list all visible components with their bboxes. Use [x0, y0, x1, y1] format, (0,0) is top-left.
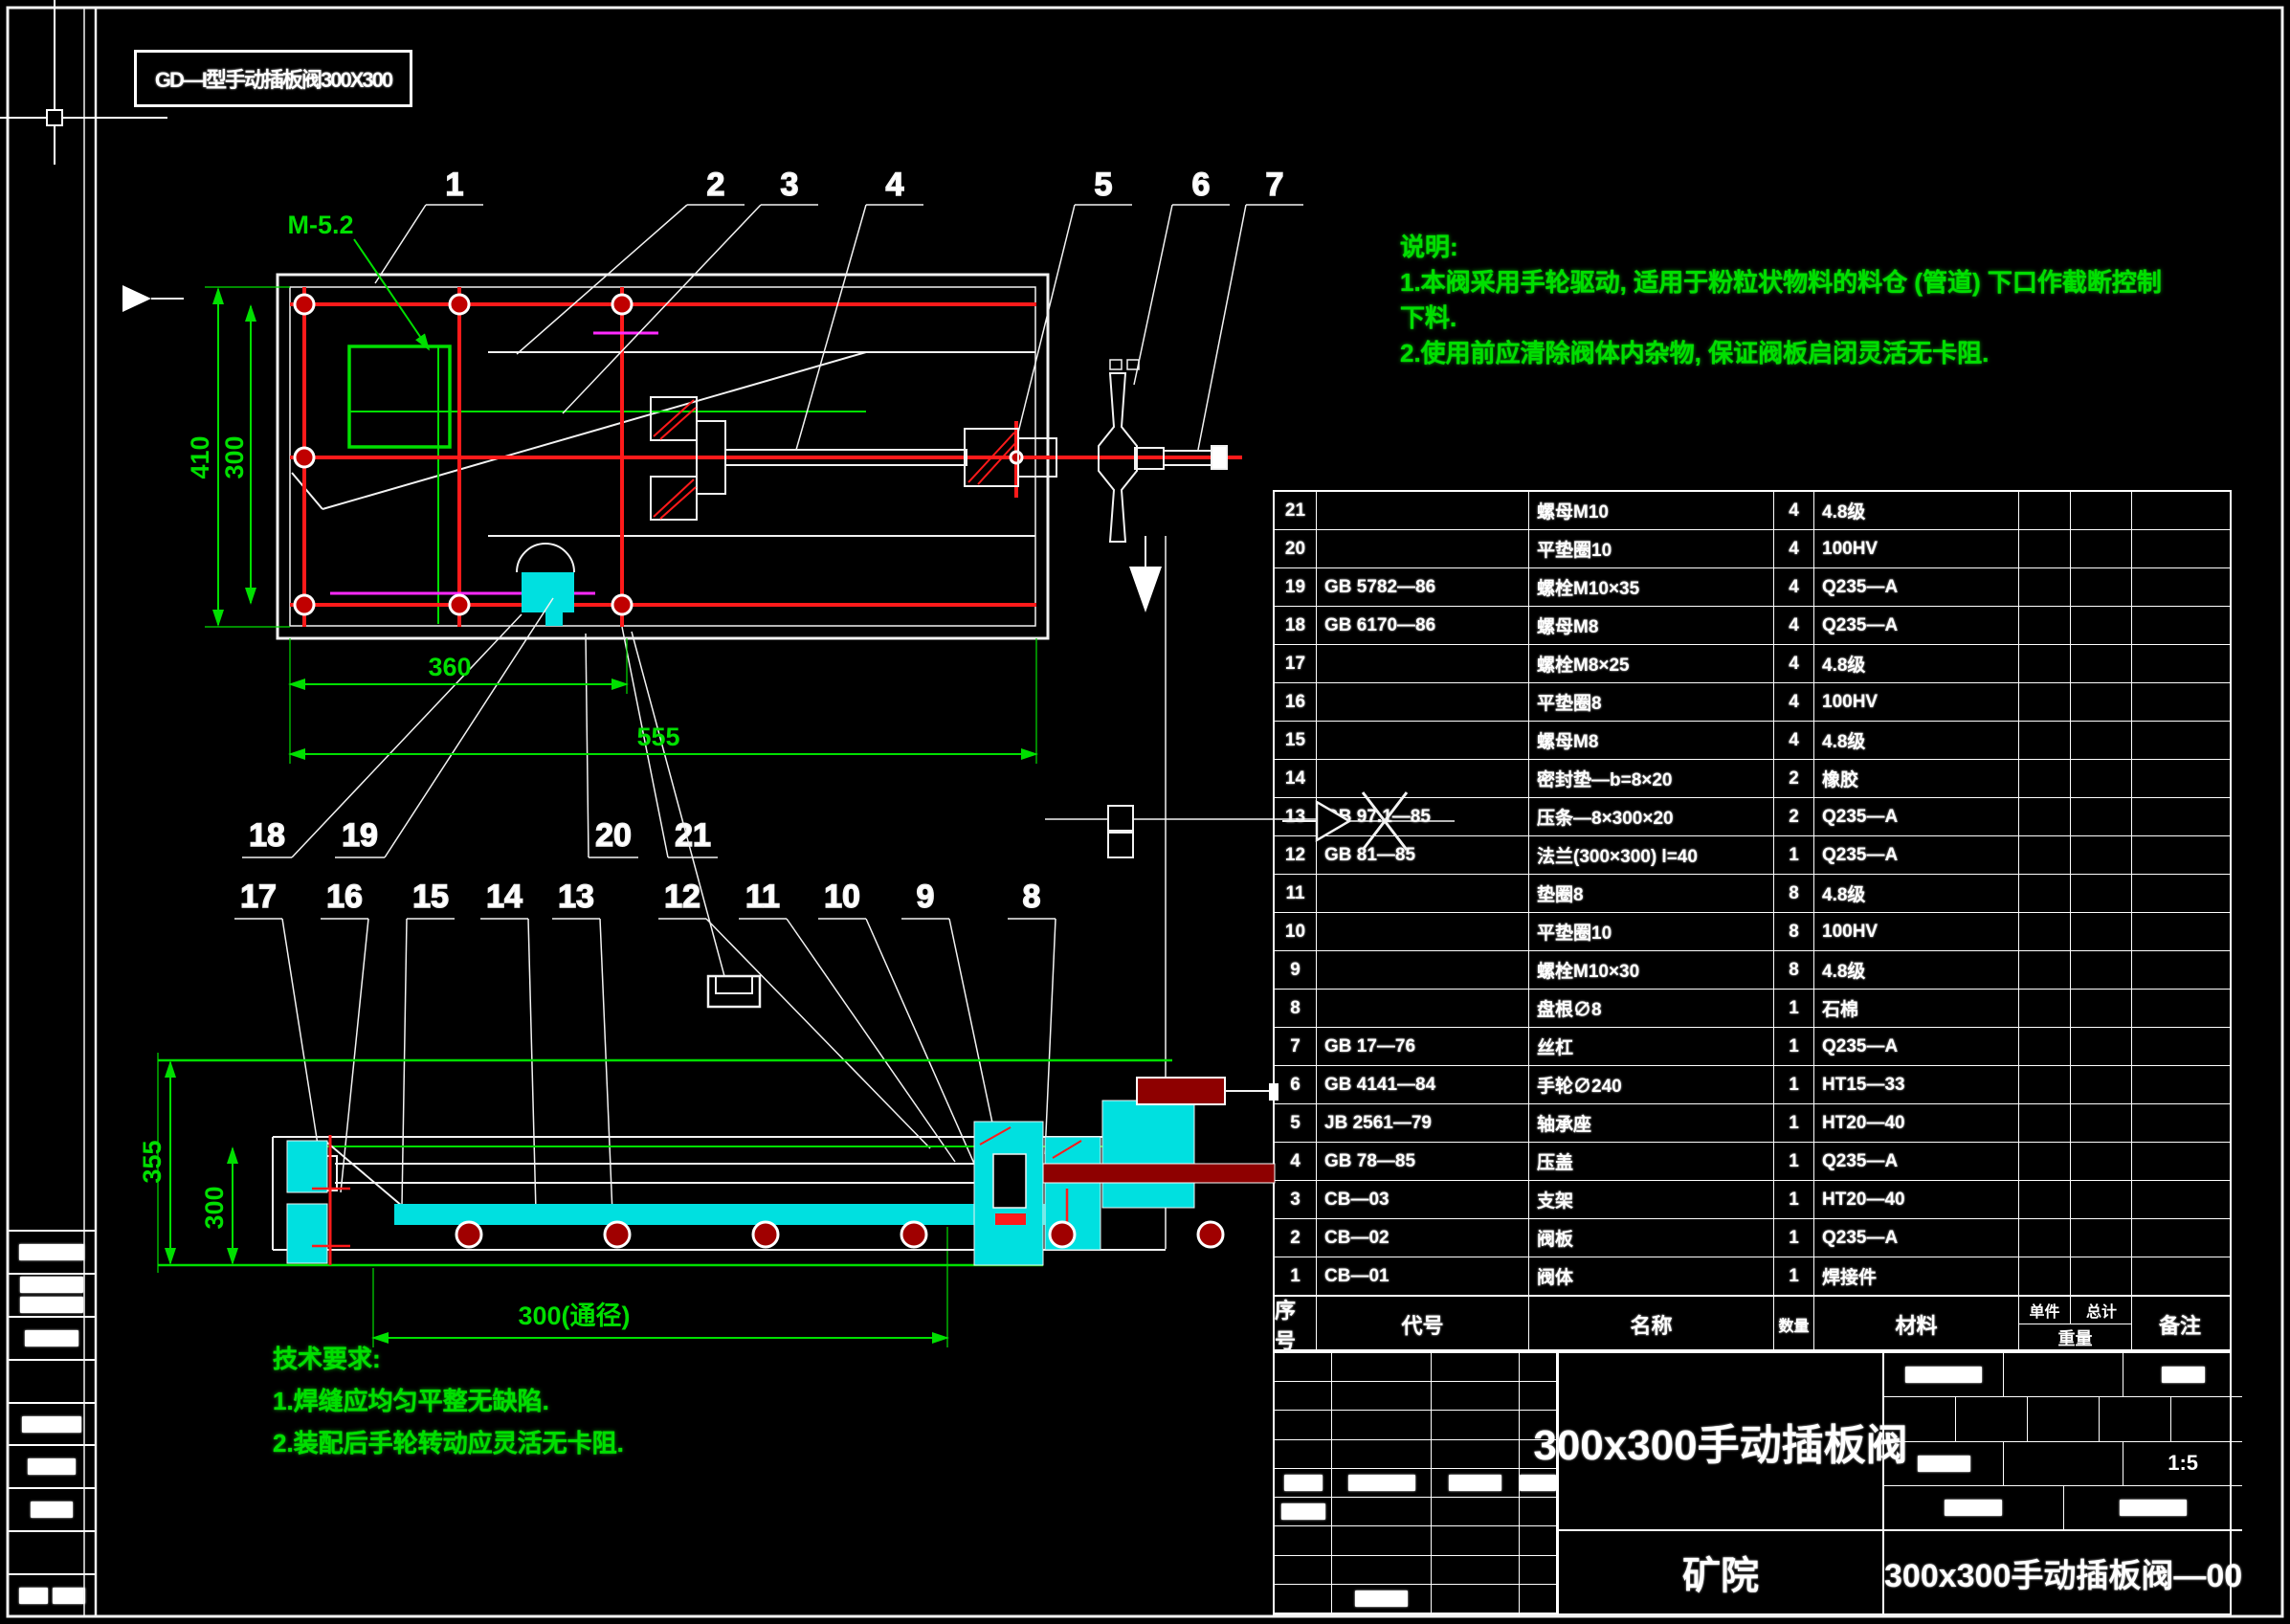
bom-cell-total [2071, 1257, 2132, 1295]
bom-cell-qty: 1 [1774, 1181, 1814, 1218]
balloon-14: 14 [486, 879, 522, 915]
dim-left-outer: 410 [186, 435, 214, 478]
bom-cell-remark [2132, 492, 2228, 529]
bom-header-remark: 备注 [2132, 1297, 2228, 1351]
bom-cell-name: 阀体 [1529, 1257, 1774, 1295]
bom-cell-total [2071, 1181, 2132, 1218]
bom-cell-qty: 1 [1774, 1257, 1814, 1295]
section-dim-left-inner: 300 [200, 1186, 229, 1229]
bom-cell-total [2071, 760, 2132, 797]
bom-cell-qty: 4 [1774, 683, 1814, 721]
bom-cell-mat: HT15—33 [1814, 1066, 2019, 1103]
bom-cell-qty: 4 [1774, 645, 1814, 682]
screw-shaft [725, 429, 1056, 486]
bom-row: 20平垫圈104100HV [1275, 530, 2230, 568]
bom-cell-no: 15 [1275, 722, 1317, 759]
bom-cell-qty: 1 [1774, 990, 1814, 1027]
bom-cell-no: 9 [1275, 951, 1317, 989]
bom-cell-unit [2019, 1257, 2071, 1295]
bom-cell-mat: 4.8级 [1814, 875, 2019, 912]
bom-cell-name: 盘根∅8 [1529, 990, 1774, 1027]
bom-cell-name: 压条—8×300×20 [1529, 798, 1774, 835]
bom-cell-remark [2132, 990, 2228, 1027]
bom-cell-name: 轴承座 [1529, 1104, 1774, 1142]
bom-cell-no: 12 [1275, 836, 1317, 874]
dim-left-inner: 300 [220, 435, 249, 478]
bom-cell-remark [2132, 836, 2228, 874]
notes-top-heading: 说明: [1400, 230, 2194, 265]
balloon-15: 15 [412, 879, 449, 915]
bom-cell-remark [2132, 1104, 2228, 1142]
balloon-8: 8 [1023, 879, 1041, 915]
bom-cell-no: 3 [1275, 1181, 1317, 1218]
bom-cell-unit [2019, 492, 2071, 529]
bom-cell-qty: 1 [1774, 1143, 1814, 1180]
bom-cell-total [2071, 492, 2132, 529]
balloon-7: 7 [1266, 167, 1284, 203]
bom-header-no: 序号 [1275, 1297, 1317, 1351]
bom-cell-unit [2019, 1181, 2071, 1218]
title-block-middle: 300x300手动插板阀 矿院 [1559, 1353, 1884, 1613]
bom-cell-code [1317, 645, 1529, 682]
bom-cell-total [2071, 1104, 2132, 1142]
bom-cell-mat: 100HV [1814, 683, 2019, 721]
bom-cell-code [1317, 990, 1529, 1027]
bom-cell-code: GB 4141—84 [1317, 1066, 1529, 1103]
bom-cell-mat: 4.8级 [1814, 722, 2019, 759]
bom-row: 12GB 81—85法兰(300×300) l=401Q235—A [1275, 836, 2230, 875]
dim-bottom-overall: 555 [636, 723, 679, 751]
bom-cell-remark [2132, 760, 2228, 797]
bom-cell-qty: 8 [1774, 951, 1814, 989]
balloon-20: 20 [595, 817, 632, 854]
bom-cell-remark [2132, 683, 2228, 721]
bom-cell-unit [2019, 913, 2071, 950]
bom-cell-unit [2019, 722, 2071, 759]
bom-cell-no: 16 [1275, 683, 1317, 721]
bom-cell-qty: 1 [1774, 1219, 1814, 1257]
notes-bottom-line1: 1.焊缝应均匀平整无缺陷. [273, 1380, 770, 1422]
bom-cell-code: CB—02 [1317, 1219, 1529, 1257]
bom-cell-code [1317, 530, 1529, 567]
bom-cell-no: 6 [1275, 1066, 1317, 1103]
bom-row: 4GB 78—85压盖1Q235—A [1275, 1143, 2230, 1181]
bom-header-total: 总计 [2071, 1297, 2132, 1324]
bom-cell-name: 平垫圈8 [1529, 683, 1774, 721]
bom-cell-total [2071, 568, 2132, 606]
bom-cell-no: 13 [1275, 798, 1317, 835]
bom-header-row: 序号 代号 名称 数量 材料 单件 总计 重量 备注 [1275, 1296, 2230, 1351]
section-arrow-right-icon [122, 285, 151, 312]
plan-gland-cyan [517, 544, 574, 626]
balloon-18: 18 [249, 817, 285, 854]
bom-row: 5JB 2561—79轴承座1HT20—40 [1275, 1104, 2230, 1143]
bom-row: 7GB 17—76丝杠1Q235—A [1275, 1028, 2230, 1066]
scale-value: 1:5 [2123, 1442, 2242, 1485]
handwheel [1099, 360, 1227, 542]
section-handle [1137, 1078, 1278, 1104]
binding-strip [8, 1230, 96, 1616]
bom-cell-remark [2132, 607, 2228, 644]
bom-cell-no: 10 [1275, 913, 1317, 950]
section-dim-left-outer: 355 [138, 1140, 167, 1183]
bom-rows: 21螺母M1044.8级20平垫圈104100HV19GB 5782—86螺栓M… [1275, 492, 2230, 1296]
drawing-title-label: GD—I型手动插板阀300X300 [134, 50, 412, 107]
notes-top-line1: 1.本阀采用手轮驱动, 适用于粉粒状物料的料仓 (管道) 下口作截断控制 [1400, 265, 2194, 300]
bom-cell-code: GB 5782—86 [1317, 568, 1529, 606]
bom-cell-name: 丝杠 [1529, 1028, 1774, 1065]
bom-cell-name: 螺栓M10×35 [1529, 568, 1774, 606]
drawing-title: 300x300手动插板阀 [1559, 1353, 1882, 1531]
balloon-13: 13 [558, 879, 594, 915]
bom-cell-remark [2132, 645, 2228, 682]
bom-cell-mat: 100HV [1814, 913, 2019, 950]
bom-cell-total [2071, 645, 2132, 682]
bom-cell-total [2071, 607, 2132, 644]
bom-cell-mat: Q235—A [1814, 1143, 2019, 1180]
bom-cell-total [2071, 913, 2132, 950]
bom-cell-code [1317, 760, 1529, 797]
bom-row: 11垫圈884.8级 [1275, 875, 2230, 913]
bom-cell-unit [2019, 1143, 2071, 1180]
balloon-9: 9 [917, 879, 935, 915]
balloons-top: 1 2 3 4 5 6 7 [375, 167, 1303, 450]
balloons-mid: 17 16 15 14 13 12 11 10 9 8 [234, 879, 1056, 1213]
bom-cell-no: 18 [1275, 607, 1317, 644]
bom-row: 9螺栓M10×3084.8级 [1275, 951, 2230, 990]
bom-cell-remark [2132, 1219, 2228, 1257]
bom-cell-total [2071, 530, 2132, 567]
bom-cell-total [2071, 798, 2132, 835]
bom-cell-total [2071, 1219, 2132, 1257]
bom-cell-no: 2 [1275, 1219, 1317, 1257]
bom-cell-unit [2019, 607, 2071, 644]
bom-cell-remark [2132, 1028, 2228, 1065]
bom-cell-unit [2019, 875, 2071, 912]
bom-cell-qty: 1 [1774, 836, 1814, 874]
opening-outline [349, 346, 866, 624]
bom-cell-name: 阀板 [1529, 1219, 1774, 1257]
bom-cell-remark [2132, 951, 2228, 989]
bom-header-name: 名称 [1529, 1297, 1774, 1351]
bom-row: 21螺母M1044.8级 [1275, 492, 2230, 530]
bom-cell-name: 螺母M8 [1529, 607, 1774, 644]
bom-cell-name: 手轮∅240 [1529, 1066, 1774, 1103]
bom-row: 6GB 4141—84手轮∅2401HT15—33 [1275, 1066, 2230, 1104]
title-block-right: 1:5 300x300手动插板阀—00 [1884, 1353, 2242, 1613]
balloon-10: 10 [824, 879, 860, 915]
balloon-21: 21 [675, 817, 711, 854]
bom-cell-mat: 100HV [1814, 530, 2019, 567]
section-dim-bottom: 300(通径) [518, 1301, 630, 1330]
bom-cell-code: CB—01 [1317, 1257, 1529, 1295]
bom-cell-code: GB 97.1—85 [1317, 798, 1529, 835]
weld-note: M-5.2 [287, 211, 353, 239]
bom-cell-total [2071, 1028, 2132, 1065]
bom-cell-qty: 4 [1774, 492, 1814, 529]
bom-cell-no: 7 [1275, 1028, 1317, 1065]
bom-cell-total [2071, 722, 2132, 759]
notes-bottom: 技术要求: 1.焊缝应均匀平整无缺陷. 2.装配后手轮转动应灵活无卡阻. [273, 1338, 770, 1464]
bom-cell-qty: 2 [1774, 798, 1814, 835]
bom-row: 3CB—03支架1HT20—40 [1275, 1181, 2230, 1219]
bom-cell-no: 4 [1275, 1143, 1317, 1180]
packing-gland [651, 397, 725, 520]
bom-cell-remark [2132, 798, 2228, 835]
bom-cell-mat: Q235—A [1814, 607, 2019, 644]
bom-cell-remark [2132, 530, 2228, 567]
bom-cell-no: 14 [1275, 760, 1317, 797]
bom-row: 2CB—02阀板1Q235—A [1275, 1219, 2230, 1257]
bom-cell-no: 5 [1275, 1104, 1317, 1142]
bom-cell-total [2071, 1066, 2132, 1103]
bom-cell-name: 螺栓M10×30 [1529, 951, 1774, 989]
bom-header-qty: 数量 [1774, 1297, 1814, 1351]
bom-cell-qty: 4 [1774, 568, 1814, 606]
drawing-number: 300x300手动插板阀—00 [1884, 1531, 2242, 1613]
bom-row: 13GB 97.1—85压条—8×300×202Q235—A [1275, 798, 2230, 836]
gate-plate-outline [292, 352, 1035, 536]
bom-cell-unit [2019, 1066, 2071, 1103]
bom-cell-name: 平垫圈10 [1529, 913, 1774, 950]
section-bolt-holes [456, 1222, 1223, 1247]
bom-cell-no: 17 [1275, 645, 1317, 682]
plan-dimensions: 410 300 360 555 M-5.2 [186, 211, 1036, 764]
notes-bottom-line2: 2.装配后手轮转动应灵活无卡阻. [273, 1422, 770, 1464]
dim-bottom-inner: 360 [428, 653, 471, 681]
bom-cell-total [2071, 836, 2132, 874]
bom-cell-unit [2019, 1104, 2071, 1142]
screw-rod [1043, 1164, 1275, 1183]
bom-cell-unit [2019, 951, 2071, 989]
bom-cell-no: 8 [1275, 990, 1317, 1027]
bom-cell-qty: 8 [1774, 875, 1814, 912]
section-arrow-down-icon [1129, 567, 1162, 612]
balloon-6: 6 [1192, 167, 1211, 203]
bom-cell-remark [2132, 568, 2228, 606]
bom-cell-total [2071, 683, 2132, 721]
plan-view [122, 275, 1242, 1249]
bom-cell-code: GB 81—85 [1317, 836, 1529, 874]
bom-cell-mat: 焊接件 [1814, 1257, 2019, 1295]
bom-row: 8盘根∅81石棉 [1275, 990, 2230, 1028]
bom-cell-mat: Q235—A [1814, 836, 2019, 874]
bom-cell-mat: Q235—A [1814, 1219, 2019, 1257]
bom-cell-unit [2019, 530, 2071, 567]
bom-row: 14密封垫—b=8×202橡胶 [1275, 760, 2230, 798]
bom-cell-code: GB 78—85 [1317, 1143, 1529, 1180]
bom-cell-unit [2019, 683, 2071, 721]
bom-header-unit: 单件 [2019, 1297, 2071, 1324]
bom-cell-total [2071, 951, 2132, 989]
bom-cell-unit [2019, 798, 2071, 835]
bom-cell-no: 20 [1275, 530, 1317, 567]
bom-cell-mat: Q235—A [1814, 1028, 2019, 1065]
bom-cell-name: 压盖 [1529, 1143, 1774, 1180]
centerlines [290, 287, 1242, 627]
section-view: 355 300 300(通径) [138, 976, 1278, 1347]
balloon-19: 19 [342, 817, 378, 854]
seal-lines [330, 333, 658, 593]
bom-cell-mat: 石棉 [1814, 990, 2019, 1027]
bom-cell-total [2071, 1143, 2132, 1180]
bom-cell-name: 螺栓M8×25 [1529, 645, 1774, 682]
notes-top-line2: 下料. [1400, 300, 2194, 336]
balloon-12: 12 [664, 879, 700, 915]
balloon-5: 5 [1095, 167, 1113, 203]
bom-row: 19GB 5782—86螺栓M10×354Q235—A [1275, 568, 2230, 607]
bom-cell-no: 1 [1275, 1257, 1317, 1295]
bom-cell-mat: 橡胶 [1814, 760, 2019, 797]
organization: 矿院 [1559, 1531, 1882, 1613]
bom-cell-no: 21 [1275, 492, 1317, 529]
bom-cell-remark [2132, 1257, 2228, 1295]
bom-cell-code: JB 2561—79 [1317, 1104, 1529, 1142]
bom-cell-mat: Q235—A [1814, 568, 2019, 606]
bom-row: 18GB 6170—86螺母M84Q235—A [1275, 607, 2230, 645]
bom-cell-code: GB 17—76 [1317, 1028, 1529, 1065]
bom-header-code: 代号 [1317, 1297, 1529, 1351]
bom-cell-name: 支架 [1529, 1181, 1774, 1218]
bom-cell-code: CB—03 [1317, 1181, 1529, 1218]
bom-cell-name: 法兰(300×300) l=40 [1529, 836, 1774, 874]
bom-cell-qty: 4 [1774, 722, 1814, 759]
bolt-holes [295, 295, 1022, 614]
bom-cell-remark [2132, 1181, 2228, 1218]
bom-cell-unit [2019, 1028, 2071, 1065]
bom-cell-code [1317, 913, 1529, 950]
notes-top: 说明: 1.本阀采用手轮驱动, 适用于粉粒状物料的料仓 (管道) 下口作截断控制… [1400, 230, 2194, 371]
bom-cell-name: 密封垫—b=8×20 [1529, 760, 1774, 797]
bom-cell-remark [2132, 722, 2228, 759]
bom-cell-name: 垫圈8 [1529, 875, 1774, 912]
bom-cell-code [1317, 492, 1529, 529]
bom-cell-qty: 1 [1774, 1028, 1814, 1065]
bom-cell-unit [2019, 760, 2071, 797]
balloon-17: 17 [240, 879, 277, 915]
bom-cell-no: 19 [1275, 568, 1317, 606]
bom-row: 16平垫圈84100HV [1275, 683, 2230, 722]
bom-cell-mat: 4.8级 [1814, 645, 2019, 682]
balloon-1: 1 [446, 167, 464, 203]
drawing-sheet: GD—I型手动插板阀300X300 说明: 1.本阀采用手轮驱动, 适用于粉粒状… [0, 0, 2290, 1624]
bom-cell-qty: 4 [1774, 607, 1814, 644]
balloon-4: 4 [886, 167, 904, 203]
balloons-lower: 18 19 20 21 [242, 598, 724, 976]
balloon-2: 2 [707, 167, 725, 203]
bom-cell-unit [2019, 568, 2071, 606]
bom-cell-remark [2132, 875, 2228, 912]
balloon-16: 16 [326, 879, 363, 915]
bom-cell-name: 平垫圈10 [1529, 530, 1774, 567]
bom-row: 15螺母M844.8级 [1275, 722, 2230, 760]
bom-cell-remark [2132, 1066, 2228, 1103]
notes-top-line3: 2.使用前应清除阀体内杂物, 保证阀板启闭灵活无卡阻. [1400, 336, 2194, 371]
bom-cell-qty: 1 [1774, 1104, 1814, 1142]
bom-cell-qty: 4 [1774, 530, 1814, 567]
title-block: 300x300手动插板阀 矿院 1:5 [1273, 1351, 2232, 1615]
bom-cell-name: 螺母M10 [1529, 492, 1774, 529]
bom-cell-qty: 1 [1774, 1066, 1814, 1103]
bom-row: 17螺栓M8×2544.8级 [1275, 645, 2230, 683]
channel-symbol [708, 976, 760, 1007]
bom-cell-mat: HT20—40 [1814, 1181, 2019, 1218]
notes-bottom-heading: 技术要求: [273, 1338, 770, 1380]
bom-header-weight-group: 单件 总计 重量 [2019, 1297, 2132, 1351]
bom-cell-qty: 8 [1774, 913, 1814, 950]
bom-cell-code: GB 6170—86 [1317, 607, 1529, 644]
section-cyan-parts [287, 1101, 1194, 1265]
bom-header-weight: 重量 [2019, 1324, 2131, 1352]
bom-cell-mat: Q235—A [1814, 798, 2019, 835]
bom-cell-no: 11 [1275, 875, 1317, 912]
bom-cell-remark [2132, 913, 2228, 950]
bom-cell-unit [2019, 1219, 2071, 1257]
bom-cell-total [2071, 990, 2132, 1027]
bom-cell-total [2071, 875, 2132, 912]
bom-cell-unit [2019, 645, 2071, 682]
bom-cell-code [1317, 683, 1529, 721]
bom-cell-remark [2132, 1143, 2228, 1180]
bom-cell-mat: 4.8级 [1814, 951, 2019, 989]
bom-cell-qty: 2 [1774, 760, 1814, 797]
bom-cell-mat: HT20—40 [1814, 1104, 2019, 1142]
balloon-11: 11 [745, 879, 780, 915]
bom-cell-code [1317, 951, 1529, 989]
bom-cell-mat: 4.8级 [1814, 492, 2019, 529]
bom-cell-code [1317, 875, 1529, 912]
bom-cell-name: 螺母M8 [1529, 722, 1774, 759]
balloon-3: 3 [781, 167, 799, 203]
bom-cell-code [1317, 722, 1529, 759]
bom-table: 21螺母M1044.8级20平垫圈104100HV19GB 5782—86螺栓M… [1273, 490, 2232, 1351]
signature-grid [1275, 1353, 1559, 1613]
bom-cell-unit [2019, 990, 2071, 1027]
bom-row: 1CB—01阀体1焊接件 [1275, 1257, 2230, 1296]
bom-cell-unit [2019, 836, 2071, 874]
bom-header-mat: 材料 [1814, 1297, 2019, 1351]
bom-row: 10平垫圈108100HV [1275, 913, 2230, 951]
